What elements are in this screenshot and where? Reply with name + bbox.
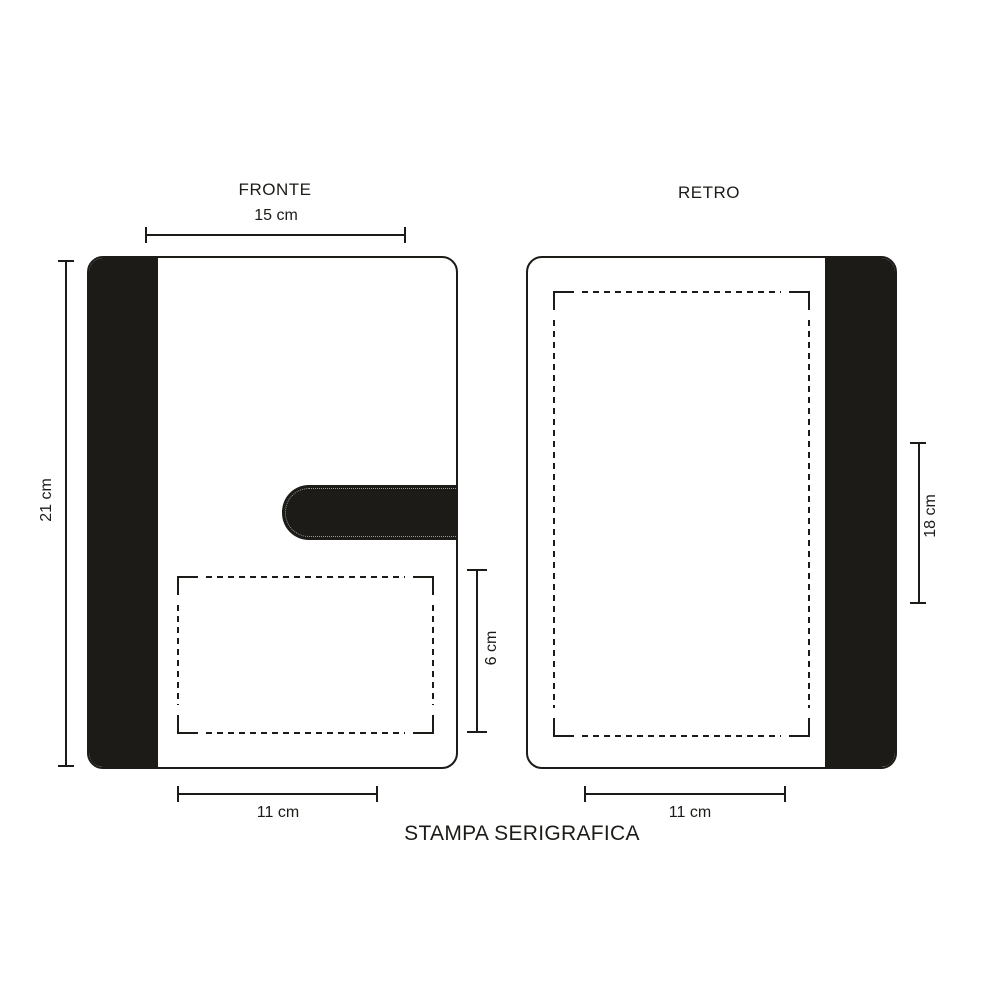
corner-bracket-icon [789,291,810,310]
front-print-area [177,576,434,734]
dashed-edge [808,320,810,708]
dashed-edge [582,735,781,737]
back-view-label: RETRO [678,183,740,203]
dim-back-print-width-line [585,793,785,795]
notebook-front [87,256,458,769]
dim-cap-icon [910,602,926,604]
dim-tick-icon [177,786,179,802]
corner-bracket-icon [789,718,810,737]
dim-tick-icon [584,786,586,802]
dim-tick-icon [404,227,406,243]
dim-tick-icon [376,786,378,802]
notebook-back-spine [825,256,897,769]
dim-front-cover-height-line [65,261,67,767]
dim-back-print-height-line [918,443,920,604]
notebook-front-spine [87,256,158,769]
dashed-edge [206,732,405,734]
dashed-edge [432,605,434,705]
corner-bracket-icon [177,715,198,734]
dim-back-print-width-label: 11 cm [669,804,711,822]
back-print-area [553,291,810,737]
corner-bracket-icon [553,291,574,310]
dim-tick-icon [145,227,147,243]
technique-title: STAMPA SERIGRAFICA [404,822,640,846]
dashed-edge [582,291,781,293]
dim-front-cover-width-line [146,234,405,236]
dashed-edge [177,605,179,705]
strap-stitch-line [285,488,456,537]
corner-bracket-icon [553,718,574,737]
corner-bracket-icon [177,576,198,595]
dim-front-cover-height-label: 21 cm [38,478,56,522]
dim-cap-icon [467,731,487,733]
dim-back-print-height-label: 18 cm [922,494,940,538]
elastic-strap [282,485,456,540]
dim-front-cover-width-label: 15 cm [254,207,298,225]
dim-front-print-height-label: 6 cm [483,631,501,666]
corner-bracket-icon [413,576,434,595]
corner-bracket-icon [413,715,434,734]
serigraphy-spec-diagram: FRONTE 15 cm 21 cm 6 cm [0,0,1000,1000]
dim-front-print-width-label: 11 cm [257,804,299,822]
dim-front-print-width-line [178,793,377,795]
dashed-edge [206,576,405,578]
dim-tick-icon [784,786,786,802]
dim-cap-icon [58,260,74,262]
dim-cap-icon [467,569,487,571]
dim-front-print-height-line [476,570,478,733]
dim-cap-icon [58,765,74,767]
dashed-edge [553,320,555,708]
notebook-back [526,256,897,769]
front-view-label: FRONTE [239,180,312,200]
dim-cap-icon [910,442,926,444]
